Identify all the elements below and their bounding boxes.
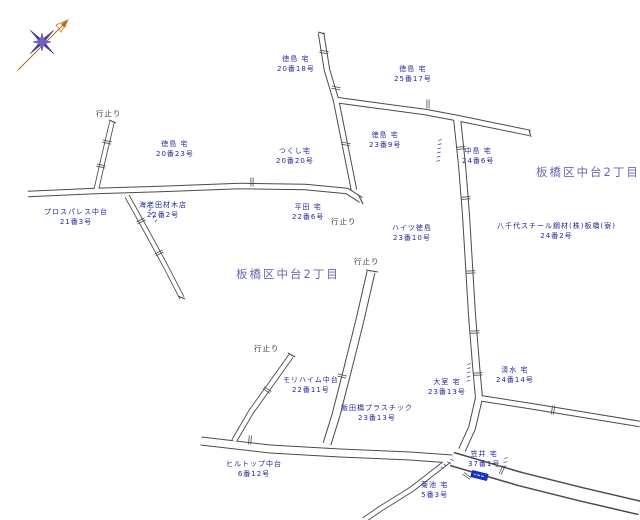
- road-fill-right-vertical: [457, 118, 479, 450]
- road-fill-mid-horizontal: [28, 186, 361, 200]
- road-annotation-mark: [438, 139, 441, 140]
- road-annotation-mark: [504, 462, 508, 463]
- road-annotation-mark: [467, 376, 470, 377]
- road-annotation-mark: [467, 372, 470, 373]
- road-annotation-mark: [467, 380, 470, 381]
- road-annotation-mark: [149, 208, 151, 211]
- road-annotation-mark: [504, 458, 508, 459]
- road-annotation-mark: [503, 466, 507, 467]
- map-canvas[interactable]: 徳島 宅20番18号徳島 宅25番17号徳島 宅23番9号中島 宅24番6号行止…: [0, 0, 640, 520]
- road-fill-deadend-upleft: [96, 122, 112, 191]
- road-annotation-mark: [437, 152, 440, 153]
- road-fill-left-deadend: [234, 356, 291, 441]
- compass-icon: [10, 12, 80, 82]
- road-fill-center-deadend: [327, 272, 371, 444]
- road-fill-east-road: [479, 398, 640, 424]
- road-network: [0, 0, 640, 520]
- road-fill-bottom-wide: [452, 459, 640, 508]
- road-fill-bottom-branch: [364, 461, 448, 520]
- road-annotation-mark: [437, 156, 440, 157]
- road-annotation-mark: [155, 219, 157, 222]
- road-annotation-mark: [467, 368, 470, 369]
- road-annotation-mark: [147, 205, 149, 208]
- road-annotation-mark: [151, 212, 153, 215]
- road-annotation-mark: [438, 144, 441, 145]
- road-fill-branch-down-left: [127, 196, 182, 298]
- road-annotation-mark: [467, 363, 470, 364]
- road-annotation-mark: [438, 148, 441, 149]
- survey-tick: [463, 474, 470, 479]
- road-annotation-mark: [153, 216, 155, 219]
- road-fill-top-vertical: [321, 33, 354, 190]
- road-annotation-mark: [436, 160, 439, 161]
